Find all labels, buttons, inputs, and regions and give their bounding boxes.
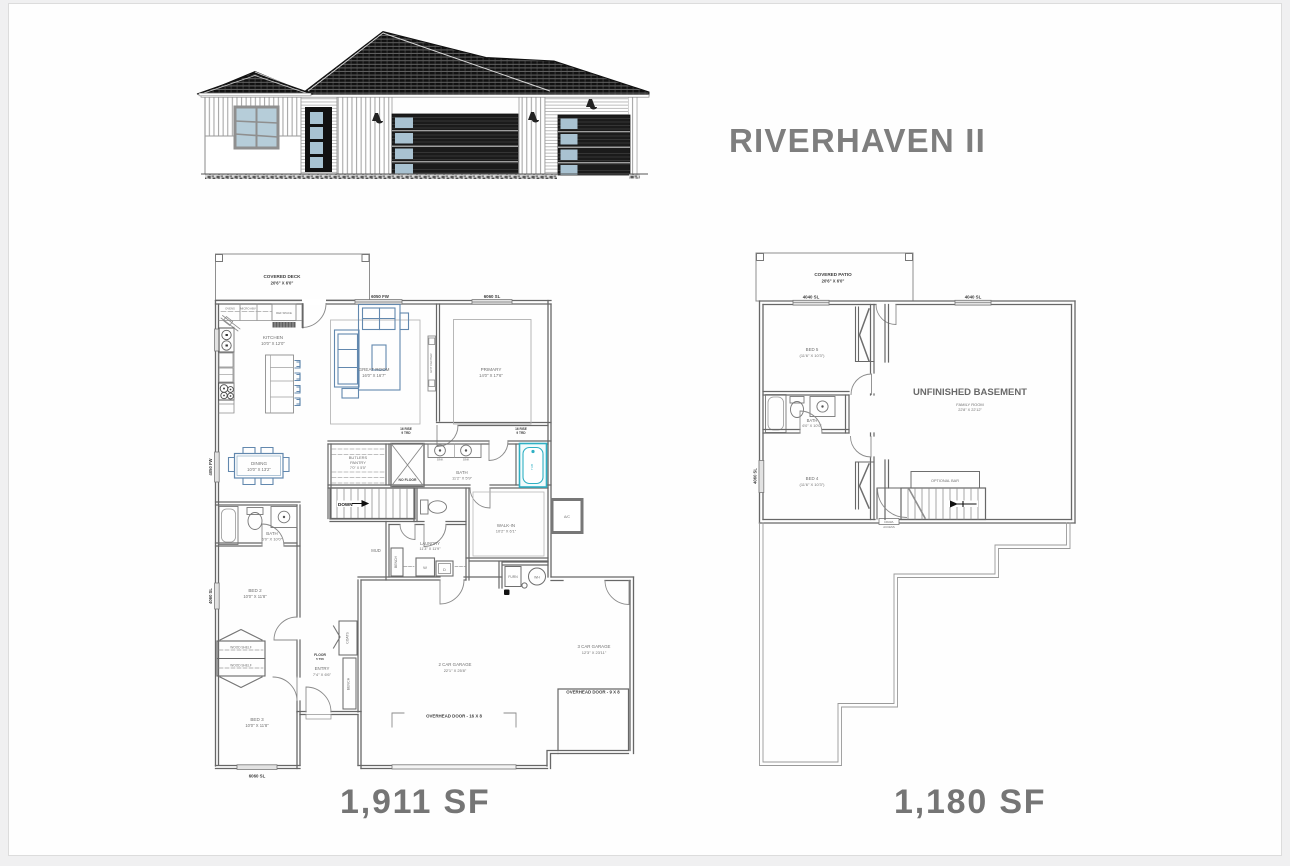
- svg-text:KITCHEN: KITCHEN: [263, 335, 283, 340]
- svg-text:22'8" X 22'12": 22'8" X 22'12": [958, 408, 982, 412]
- svg-text:16'0" X 16'7": 16'0" X 16'7": [362, 373, 386, 378]
- svg-text:OPTIONAL BAR: OPTIONAL BAR: [931, 479, 959, 483]
- svg-text:BED 5: BED 5: [806, 347, 819, 352]
- svg-text:SINK: SINK: [437, 458, 444, 462]
- svg-text:PRIMARY: PRIMARY: [481, 367, 502, 372]
- svg-text:20'6" X 6'0": 20'6" X 6'0": [822, 279, 845, 284]
- svg-text:TUB: TUB: [530, 464, 534, 470]
- svg-text:9 TRD: 9 TRD: [401, 431, 411, 435]
- svg-text:FAMILY ROOM: FAMILY ROOM: [956, 402, 983, 407]
- svg-text:ENT CENTER: ENT CENTER: [429, 353, 433, 373]
- svg-text:14'0" X 17'6": 14'0" X 17'6": [479, 373, 503, 378]
- svg-text:WOOD SHELF: WOOD SHELF: [230, 664, 251, 668]
- svg-text:BATH: BATH: [807, 418, 818, 423]
- svg-text:ENTRY: ENTRY: [315, 666, 330, 671]
- svg-text:1,911 SF: 1,911 SF: [340, 783, 491, 821]
- svg-text:6'0" X 10'0": 6'0" X 10'0": [262, 537, 283, 542]
- svg-text:9 TRD: 9 TRD: [516, 431, 526, 435]
- svg-text:6'0" X 10'0": 6'0" X 10'0": [802, 424, 822, 428]
- svg-text:(11'6" X 10'3"): (11'6" X 10'3"): [800, 353, 826, 358]
- svg-text:UNFINISHED BASEMENT: UNFINISHED BASEMENT: [913, 387, 1027, 398]
- svg-text:20'6" X 6'0": 20'6" X 6'0": [271, 281, 294, 286]
- svg-text:6060 SL: 6060 SL: [249, 774, 266, 779]
- svg-text:ACCESS: ACCESS: [883, 525, 895, 529]
- svg-text:COVERED DECK: COVERED DECK: [263, 274, 301, 279]
- svg-text:COATS: COATS: [346, 632, 350, 644]
- svg-text:REF SPACE: REF SPACE: [276, 311, 292, 315]
- svg-text:DINING: DINING: [251, 461, 268, 466]
- svg-text:22'1" X 25'8": 22'1" X 25'8": [444, 668, 467, 673]
- svg-text:OVENS: OVENS: [225, 307, 235, 311]
- svg-text:4040 SL: 4040 SL: [965, 295, 982, 300]
- svg-text:3 CAR GARAGE: 3 CAR GARAGE: [578, 644, 611, 649]
- svg-text:10'0" X 11'8": 10'0" X 11'8": [243, 594, 267, 599]
- svg-text:PANTRY: PANTRY: [350, 460, 366, 465]
- svg-text:LAUNDRY: LAUNDRY: [420, 541, 440, 546]
- svg-text:MICRO ABV: MICRO ABV: [240, 307, 256, 311]
- svg-text:4050 FW: 4050 FW: [208, 458, 213, 475]
- svg-text:WH: WH: [534, 576, 540, 580]
- svg-text:COVERED PATIO: COVERED PATIO: [814, 272, 852, 277]
- svg-text:A/C: A/C: [564, 515, 570, 519]
- svg-text:7'0" X 5'5": 7'0" X 5'5": [350, 466, 367, 470]
- svg-text:10'0" X 12'0": 10'0" X 12'0": [261, 341, 285, 346]
- svg-text:4040 SL: 4040 SL: [803, 295, 820, 300]
- svg-text:4060 SL: 4060 SL: [208, 588, 213, 604]
- svg-text:MUD: MUD: [371, 548, 381, 553]
- svg-text:FURN: FURN: [508, 575, 518, 579]
- svg-text:SINK: SINK: [463, 458, 470, 462]
- svg-text:OVERHEAD DOOR - 9 X 8: OVERHEAD DOOR - 9 X 8: [566, 690, 620, 695]
- svg-text:4060 SL: 4060 SL: [753, 468, 758, 484]
- svg-text:7'4" X 6'6": 7'4" X 6'6": [313, 672, 332, 677]
- svg-text:BATH: BATH: [266, 531, 277, 536]
- svg-text:NO FLOOR: NO FLOOR: [399, 478, 417, 482]
- svg-text:(11'6" X 10'3"): (11'6" X 10'3"): [800, 482, 826, 487]
- svg-text:11'3" X 11'9": 11'3" X 11'9": [420, 547, 442, 551]
- svg-text:2 CAR GARAGE: 2 CAR GARAGE: [439, 662, 472, 667]
- svg-text:DOWN: DOWN: [338, 502, 353, 507]
- svg-text:GREAT ROOM: GREAT ROOM: [359, 367, 390, 372]
- svg-text:RIVERHAVEN II: RIVERHAVEN II: [729, 122, 986, 159]
- svg-text:1,180 SF: 1,180 SF: [894, 783, 1046, 821]
- svg-text:OVERHEAD DOOR - 16 X 8: OVERHEAD DOOR - 16 X 8: [426, 714, 482, 719]
- svg-text:BED 2: BED 2: [248, 588, 262, 593]
- svg-text:BED 3: BED 3: [250, 717, 264, 722]
- svg-text:5 T06: 5 T06: [316, 657, 324, 661]
- svg-text:6060 SL: 6060 SL: [484, 294, 501, 299]
- svg-text:6050 FW: 6050 FW: [371, 294, 390, 299]
- svg-text:WOOD SHELF: WOOD SHELF: [230, 646, 251, 650]
- svg-text:10'2" X 6'1": 10'2" X 6'1": [496, 529, 517, 534]
- svg-text:BENCH: BENCH: [347, 677, 351, 690]
- svg-text:10'0" X 11'8": 10'0" X 11'8": [245, 723, 269, 728]
- svg-text:10'0" X 13'2": 10'0" X 13'2": [247, 467, 271, 472]
- svg-text:BATH: BATH: [456, 470, 467, 475]
- svg-text:D: D: [443, 567, 446, 572]
- svg-text:12'3" X 23'11": 12'3" X 23'11": [582, 650, 607, 655]
- svg-text:WALK-IN: WALK-IN: [497, 523, 515, 528]
- svg-text:BED 4: BED 4: [806, 476, 819, 481]
- svg-text:BENCH: BENCH: [394, 556, 398, 568]
- svg-text:11'2" X 5'9": 11'2" X 5'9": [452, 476, 473, 481]
- svg-text:CRAWL: CRAWL: [884, 520, 894, 524]
- svg-text:W: W: [423, 565, 427, 570]
